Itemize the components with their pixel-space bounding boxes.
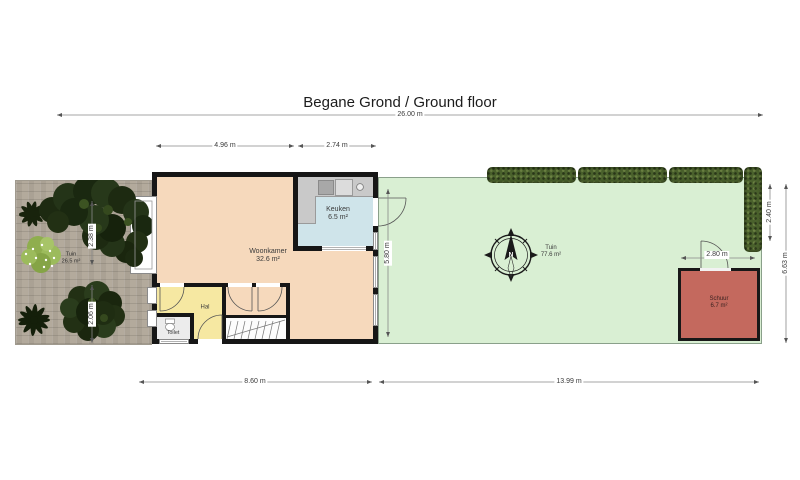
floor-plan: Begane Grond / Ground floor <box>0 0 800 480</box>
keuken-area: 6.5 m² <box>326 214 350 222</box>
hal-name: Hal <box>200 305 209 312</box>
front-door-opening <box>198 339 222 344</box>
window-right-2 <box>373 294 378 326</box>
dim-garden-width: 13.99 m <box>554 378 583 386</box>
toilet-label: Toilet <box>167 330 180 337</box>
window-left-small-2 <box>147 310 157 327</box>
keuken-label: Keuken 6.5 m² <box>326 206 350 222</box>
hal-door-opening <box>160 283 184 287</box>
front-garden-area-value: 26.5 m² <box>62 258 81 265</box>
landing-door-opening-2 <box>256 283 280 287</box>
dim-total-width: 26.00 m <box>395 111 424 119</box>
dim-hedge-depth: 2.40 m <box>766 199 774 224</box>
landing-door-opening-1 <box>228 283 252 287</box>
dim-house-width: 8.60 m <box>242 378 267 386</box>
dim-front-garden-lower: 2.06 m <box>88 301 96 326</box>
dim-front-garden-upper: 2.38 m <box>88 223 96 248</box>
schuur-door-opening <box>700 268 731 271</box>
back-garden-name: Tuin <box>541 245 561 252</box>
dim-living-width: 4.96 m <box>212 142 237 150</box>
woonkamer-label: Woonkamer 32.6 m² <box>249 248 287 264</box>
dim-kitchen-width: 2.74 m <box>324 142 349 150</box>
window-right-keuken <box>373 232 378 250</box>
window-bottom-toilet <box>159 339 189 344</box>
plan-title: Begane Grond / Ground floor <box>0 94 800 111</box>
toilet-name: Toilet <box>167 330 180 337</box>
stairs-right-wall <box>286 283 290 339</box>
hedge-right <box>744 167 762 252</box>
back-garden-area-value: 77.6 m² <box>541 252 561 259</box>
keuken-name: Keuken <box>326 206 350 214</box>
oven-appliance <box>335 179 353 196</box>
back-garden-label: Tuin 77.6 m² <box>541 245 561 259</box>
window-left-small-1 <box>147 287 157 304</box>
stairs <box>226 315 286 339</box>
woonkamer-area: 32.6 m² <box>249 256 287 264</box>
dim-shed-width: 2.80 m <box>704 251 729 259</box>
kitchen-counter-left <box>298 196 316 224</box>
keuken-passage-opening <box>322 246 366 251</box>
woonkamer-name: Woonkamer <box>249 248 287 256</box>
dim-garden-full-depth: 6.63 m <box>782 250 790 275</box>
schuur-label: Schuur 6.7 m² <box>709 296 728 310</box>
dim-garden-depth: 5.80 m <box>384 240 392 265</box>
schuur-area: 6.7 m² <box>709 303 728 310</box>
window-right-1 <box>373 256 378 288</box>
toilet-right-wall <box>190 313 194 339</box>
front-garden-label: Tuin 26.5 m² <box>62 252 81 265</box>
window-left-large <box>130 196 157 274</box>
stove-appliance <box>318 180 334 195</box>
schuur-name: Schuur <box>709 296 728 303</box>
hedge-top-3 <box>669 167 743 183</box>
hedge-top-2 <box>578 167 667 183</box>
hedge-top-1 <box>487 167 576 183</box>
back-door-opening <box>373 198 378 226</box>
hal-label: Hal <box>200 305 209 312</box>
